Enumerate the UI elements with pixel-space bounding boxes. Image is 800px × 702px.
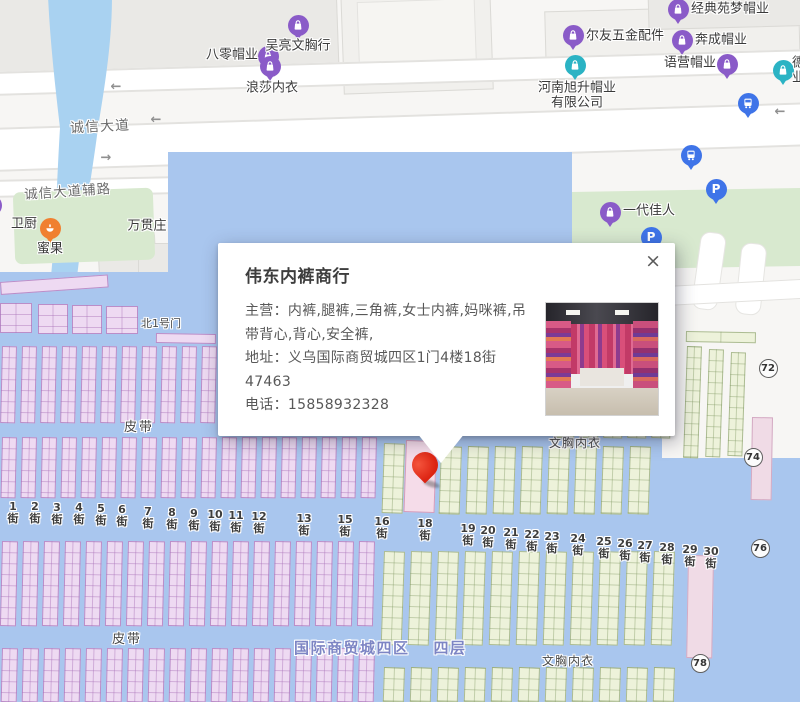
parking-icon[interactable]: P: [706, 179, 727, 200]
area-label: 皮带: [124, 416, 154, 435]
street-label: 29街: [681, 544, 699, 567]
close-icon[interactable]: ×: [645, 252, 661, 271]
street-label: 11街: [227, 510, 245, 533]
street-label: 3街: [48, 502, 66, 525]
poi-label: 蜜果: [37, 243, 63, 258]
poi-label: 万贯庄: [127, 220, 166, 235]
map-canvas[interactable]: 1街2街3街4街5街6街7街8街9街10街11街12街13街15街16街18街1…: [0, 0, 800, 702]
shop-details: 主营：内裤,腿裤,三角裤,女士内裤,妈咪裤,吊带背心,背心,安全裤, 地址：义乌…: [245, 300, 531, 418]
photo-light: [566, 310, 579, 316]
photo-left-wall: [546, 321, 571, 390]
stall-block: [686, 331, 756, 343]
street-label: 1街: [4, 501, 22, 524]
shopping-icon[interactable]: [260, 56, 281, 77]
poi-label: 吴亮文胸行: [265, 40, 330, 55]
shop-main-products: 主营：内裤,腿裤,三角裤,女士内裤,妈咪裤,吊带背心,背心,安全裤,: [245, 300, 531, 347]
street-label: 27街: [636, 540, 654, 563]
street-label: 9街: [185, 508, 203, 531]
street-label: 10街: [206, 509, 224, 532]
street-label: 4街: [70, 502, 88, 525]
area-label: 皮带: [112, 628, 142, 647]
street-label: 18街: [416, 518, 434, 541]
stall-block: [727, 352, 746, 456]
market-floor: [0, 272, 172, 702]
shopping-icon[interactable]: [773, 60, 794, 81]
street-label: 22街: [523, 529, 541, 552]
zone-label-part2: 四层: [434, 639, 467, 657]
traffic-direction-arrow: ←: [151, 113, 162, 128]
shopping-icon[interactable]: [672, 30, 693, 51]
poi-label: 奔成帽业: [695, 34, 747, 49]
poi-label: 卫厨: [11, 218, 37, 233]
photo-right-wall: [633, 321, 658, 390]
popup-tail: [414, 433, 468, 465]
food-icon[interactable]: [40, 218, 61, 239]
market-floor: [660, 458, 800, 702]
shop-address: 地址：义乌国际商贸城四区1门4楼18街 47463: [245, 347, 531, 394]
street-label: 24街: [569, 533, 587, 556]
photo-floor: [546, 388, 658, 415]
street-label: 13街: [295, 513, 313, 536]
bus-stop-icon[interactable]: [738, 93, 759, 114]
zone-label-part1: 国际商贸城四区: [294, 639, 410, 657]
street-label: 28街: [658, 542, 676, 565]
traffic-direction-arrow: ←: [775, 105, 786, 120]
poi-label: 德业: [792, 56, 800, 85]
poi-label: 浪莎内衣: [246, 82, 298, 97]
gate-number-badge: 78: [691, 654, 710, 673]
street-label: 20街: [479, 525, 497, 548]
street-label: 21街: [502, 527, 520, 550]
shopping-icon[interactable]: [717, 54, 738, 75]
area-label: 文胸内衣: [542, 652, 594, 669]
street-label: 2街: [26, 501, 44, 524]
stall-block: [705, 349, 724, 457]
poi-label: 河南旭升帽业有限公司: [538, 81, 616, 110]
poi-label: 尔友五金配件: [586, 30, 664, 45]
street-label: 25街: [595, 536, 613, 559]
shopping-icon[interactable]: [668, 0, 689, 20]
street-label: 26街: [616, 538, 634, 561]
street-label: 15街: [336, 514, 354, 537]
photo-light: [615, 310, 628, 316]
shop-phone: 电话：15858932328: [245, 394, 531, 418]
street-label: 5街: [92, 503, 110, 526]
street-label: 7街: [139, 506, 157, 529]
street-label: 8街: [163, 507, 181, 530]
shopping-icon[interactable]: [288, 15, 309, 36]
shopping-icon[interactable]: [600, 202, 621, 223]
shop-photo[interactable]: [545, 302, 659, 416]
street-label: 6街: [113, 504, 131, 527]
traffic-direction-arrow: →: [101, 151, 112, 166]
shopping-icon[interactable]: [563, 25, 584, 46]
area-label: 文胸内衣: [549, 434, 601, 451]
shopping-icon[interactable]: [565, 55, 586, 76]
street-label: 16街: [373, 516, 391, 539]
stall-block: [683, 346, 702, 458]
poi-label: 八零帽业: [206, 49, 258, 64]
traffic-direction-arrow: ←: [111, 80, 122, 95]
poi-label: 经典苑梦帽业: [691, 3, 769, 18]
bus-stop-icon[interactable]: [681, 145, 702, 166]
street-label: 12街: [250, 511, 268, 534]
road-label: 诚信大道: [70, 114, 131, 137]
gate-number-badge: 72: [759, 359, 778, 378]
zone-label: 国际商贸城四区四层: [294, 637, 467, 658]
gate-number-badge: 76: [751, 539, 770, 558]
street-label: 19街: [459, 523, 477, 546]
photo-counter: [580, 368, 625, 386]
street-label: 23街: [543, 531, 561, 554]
area-label: 北1号门: [141, 315, 181, 331]
street-label: 30街: [702, 546, 720, 569]
shop-title: 伟东内裤商行: [245, 262, 659, 287]
poi-label: 语营帽业: [664, 57, 716, 72]
shop-info-popup: 伟东内裤商行 × 主营：内裤,腿裤,三角裤,女士内裤,妈咪裤,吊带背心,背心,安…: [218, 243, 675, 436]
photo-back-wall: [571, 324, 634, 373]
poi-label: 一代佳人: [623, 205, 675, 220]
gate-number-badge: 74: [744, 448, 763, 467]
